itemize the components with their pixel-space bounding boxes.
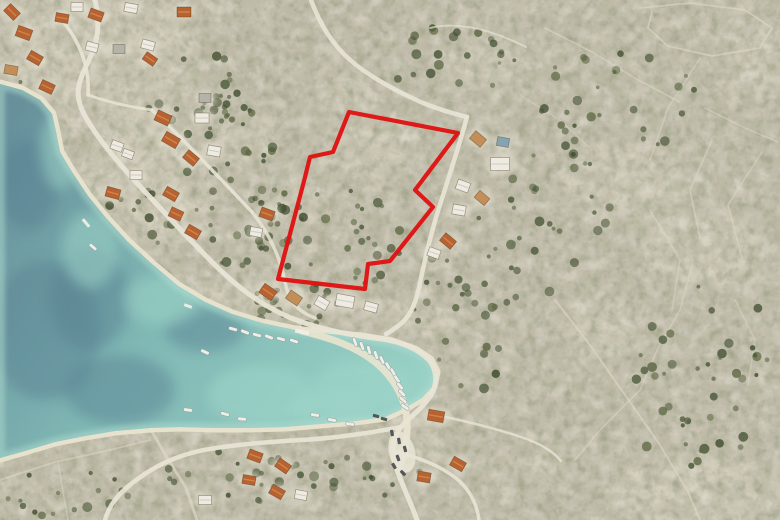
satellite-photo — [0, 0, 780, 520]
satellite-map — [0, 0, 780, 520]
